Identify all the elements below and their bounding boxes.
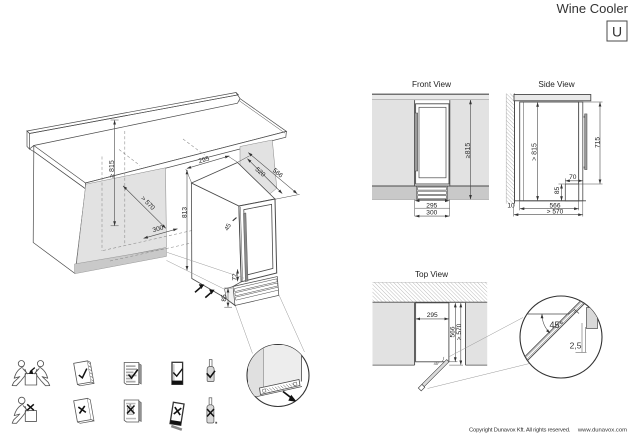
- svg-text:715: 715: [595, 137, 602, 148]
- svg-text:Side View: Side View: [538, 80, 574, 89]
- svg-text:U: U: [612, 24, 622, 40]
- svg-text:300: 300: [426, 210, 437, 217]
- svg-text:> 570: > 570: [456, 323, 463, 340]
- svg-text:≥ 815: ≥ 815: [109, 160, 116, 178]
- svg-text:2,5: 2,5: [570, 341, 582, 351]
- svg-text:> 815: > 815: [531, 143, 538, 161]
- svg-text:> 570: > 570: [547, 209, 564, 216]
- svg-text:85: 85: [221, 294, 228, 302]
- svg-text:Wine Cooler: Wine Cooler: [556, 1, 628, 16]
- svg-text:295: 295: [426, 203, 437, 210]
- svg-text:45°: 45°: [434, 362, 440, 366]
- svg-text:45°: 45°: [550, 320, 564, 330]
- svg-text:Front View: Front View: [412, 80, 451, 89]
- svg-text:813: 813: [181, 207, 188, 218]
- svg-text:≥815: ≥815: [465, 143, 472, 159]
- svg-text:Top View: Top View: [415, 270, 448, 279]
- svg-text:295: 295: [427, 312, 438, 319]
- svg-text:Copyright Dunavox Kft. All rig: Copyright Dunavox Kft. All rights reserv…: [469, 428, 571, 434]
- svg-text:70: 70: [569, 174, 577, 181]
- svg-text:www.dunavox.com: www.dunavox.com: [577, 428, 627, 434]
- svg-text:85: 85: [554, 187, 561, 195]
